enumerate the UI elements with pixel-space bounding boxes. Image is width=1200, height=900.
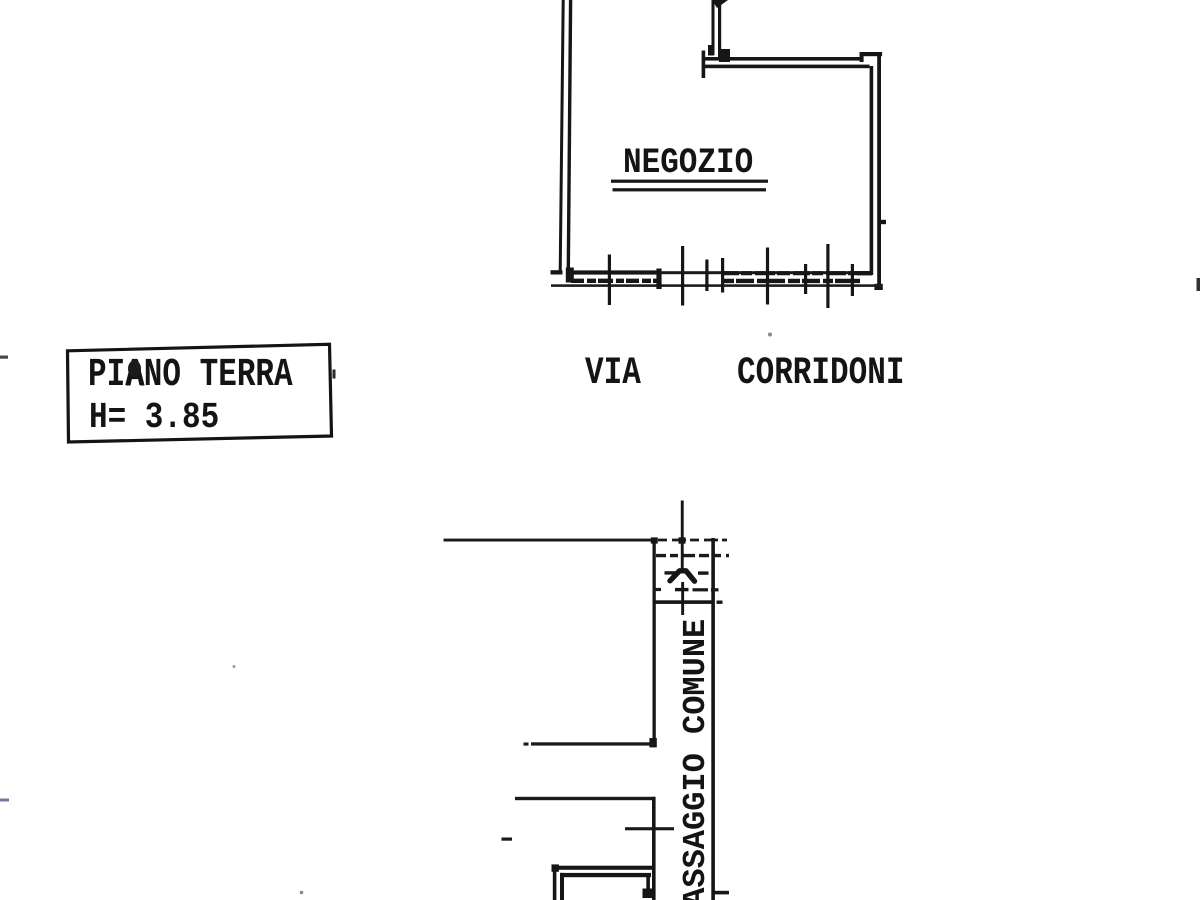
svg-text:PIANO TERRA: PIANO TERRA [88, 353, 293, 398]
svg-text:VIA: VIA [585, 352, 641, 396]
svg-text:H= 3.85: H= 3.85 [89, 398, 219, 439]
svg-text:NEGOZIO: NEGOZIO [623, 143, 753, 183]
svg-text:CORRIDONI: CORRIDONI [737, 352, 904, 396]
svg-text:PASSAGGIO COMUNE: PASSAGGIO COMUNE [677, 619, 714, 900]
